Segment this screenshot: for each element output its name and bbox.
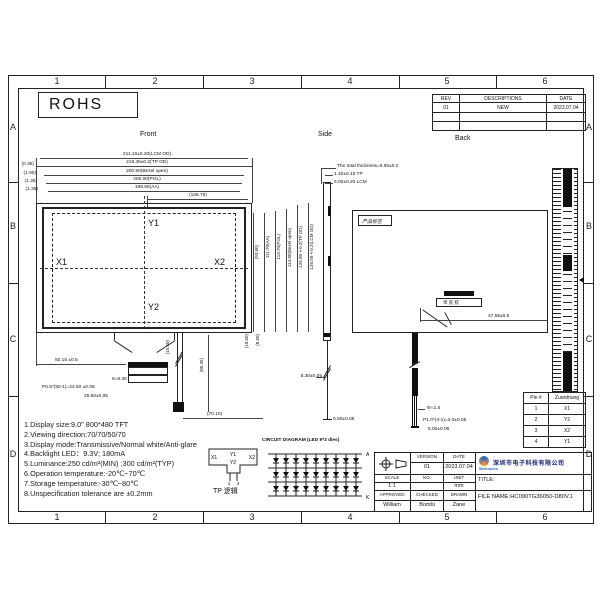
- title-block-line: [475, 452, 476, 512]
- grid-col-label: 2: [145, 76, 165, 86]
- led-symbol: [293, 458, 299, 463]
- dim-leader: [322, 168, 336, 169]
- frame-tick: [203, 75, 204, 88]
- no-label: NO.: [423, 475, 431, 480]
- dim-label-tail-len: (80.35): [200, 358, 205, 372]
- dim-ext-line: [321, 168, 322, 184]
- tp-y1-label: Y1: [230, 452, 236, 458]
- dim-ext-line: [252, 158, 253, 203]
- led-symbol: [323, 472, 329, 477]
- fpc-pin-strip-stripes: [574, 169, 577, 391]
- dim-label-conn-total: 25.50±0.05: [84, 394, 108, 400]
- pointer-arrow-icon: [579, 277, 584, 283]
- rev-cell: [547, 122, 586, 131]
- led-symbol: [333, 472, 339, 477]
- fpc-tail-edge: [182, 333, 183, 403]
- dim-label-aa-w: 198.90(AA): [135, 185, 159, 191]
- back-connector-bar: [444, 291, 474, 296]
- rev-cell: NEW: [460, 103, 547, 113]
- title-block-line: [374, 490, 592, 491]
- led-symbol: [323, 486, 329, 491]
- tp-y2-label: Y2: [230, 460, 236, 466]
- grid-row-label: D: [8, 449, 18, 459]
- frame-tick: [301, 511, 302, 524]
- title-block-line: [410, 462, 475, 463]
- rohs-label: ROHS: [49, 96, 103, 114]
- dim-line: [36, 166, 252, 167]
- dim-line: [40, 158, 248, 159]
- grid-col-label: 3: [242, 512, 262, 522]
- rohs-box: ROHS: [38, 92, 138, 118]
- led-symbol: [303, 458, 309, 463]
- dim-leader: [316, 377, 326, 378]
- led-symbol: [333, 486, 339, 491]
- led-symbol: [293, 486, 299, 491]
- back-outline: [352, 210, 548, 333]
- led-symbol: [343, 486, 349, 491]
- fpc-pin-strip-stripes: [553, 169, 561, 391]
- grid-col-label: 4: [340, 76, 360, 86]
- frame-tick: [203, 511, 204, 524]
- spec-line: 4.Backlight LED：9.3V; 180mA: [24, 449, 197, 459]
- rev-header: DESCRIPTIONS: [460, 95, 547, 103]
- logo-cn-text: 深圳市电子科技有限公司: [493, 458, 565, 467]
- led-symbol: [273, 458, 279, 463]
- pin-table-header: Pin #: [524, 393, 549, 404]
- led-symbol: [313, 486, 319, 491]
- rev-cell: 2023.07.04: [547, 103, 586, 113]
- date-value: 2023.07.04: [445, 464, 473, 470]
- axis-x2-label: X2: [214, 257, 225, 267]
- checked-value: Bombi: [419, 502, 435, 508]
- dim-label-tail-off: (70.10): [206, 412, 223, 418]
- dim-ext-line: [420, 308, 421, 322]
- grid-col-label: 1: [47, 76, 67, 86]
- pin-table-header: Zuordnung: [549, 393, 586, 404]
- led-symbol: [353, 486, 359, 491]
- led-symbol: [303, 472, 309, 477]
- grid-row-label: A: [8, 122, 18, 132]
- dim-label-lcm-thick: 5.00±0.20 LCM: [334, 180, 367, 186]
- title-block-line: [374, 474, 592, 475]
- fpc-fold-edge: [114, 333, 115, 340]
- grid-col-label: 5: [437, 512, 457, 522]
- dim-leader: [418, 409, 425, 410]
- axis-x1-label: X1: [56, 257, 67, 267]
- spec-line: 1.Display size:9.0" 800*480 TFT: [24, 420, 197, 430]
- fpc-pin-strip-block: [563, 352, 572, 391]
- center-line-v: [144, 196, 145, 329]
- spec-line: 2.Viewing direction:70/70/50/70: [24, 430, 197, 440]
- dim-label-total-thick: The total thickness=6.90±0.2: [337, 164, 398, 170]
- front-view-label: Front: [140, 131, 156, 138]
- dim-line: [297, 205, 298, 332]
- drawn-label: DRAWN: [451, 492, 468, 497]
- spec-line: 8.Unspecification tolerance are ±0.2mm: [24, 489, 197, 499]
- product-label-text: 产品标签: [362, 218, 382, 225]
- side-view-label: Side: [318, 131, 332, 138]
- pin-number: 1: [524, 404, 549, 415]
- dim-label-pin-total: 5.00±0.05: [428, 427, 449, 433]
- unit-label: UNIT: [454, 475, 465, 480]
- frame-tick: [584, 182, 594, 183]
- pin-table: Pin # Zuordnung 1X1 2Y2 3X2 4Y1: [523, 392, 586, 448]
- unit-value: mm: [454, 483, 463, 489]
- rev-cell: [460, 122, 547, 131]
- dim-label-bezel-w: 200.90(Bezel open): [126, 169, 168, 175]
- version-value: 01: [424, 464, 430, 470]
- rev-cell: [433, 113, 460, 122]
- side-tail-end: [323, 419, 332, 420]
- version-label: VERSION: [417, 454, 437, 459]
- dim-offset-label: (1.35): [18, 187, 38, 193]
- rev-cell: 01: [433, 103, 460, 113]
- tp-pin4-label: 4: [237, 481, 240, 485]
- dim-label-conn-w: 9=6.35: [112, 377, 127, 383]
- pin-signal: X1: [549, 404, 586, 415]
- grid-row-label: B: [584, 221, 594, 231]
- back-view-label: Back: [455, 135, 471, 142]
- led-circuit-title: CIRCUIT DIAGRAM (LED 9*3 dies): [262, 438, 339, 443]
- title-block-line: [374, 500, 475, 501]
- pin-number: 3: [524, 426, 549, 437]
- dim-line: [36, 364, 126, 365]
- rev-cell: [547, 113, 586, 122]
- scale-label: SCALE: [385, 475, 400, 480]
- dim-label-pin-dia: Φ=1.5: [427, 406, 440, 412]
- dim-line: [183, 418, 263, 419]
- spec-line: 5.Luminance:250 cd/m²(MIN) ;300 cd/m²(TY…: [24, 459, 197, 469]
- side-profile-mark: [324, 333, 330, 337]
- dim-line: [208, 335, 209, 412]
- frame-tick: [399, 511, 400, 524]
- fpc-connector-body: [128, 367, 168, 375]
- dim-label-fold-h: (15.50): [166, 340, 171, 354]
- tp-x2-label: X2: [249, 455, 255, 461]
- pin-signal: Y2: [549, 415, 586, 426]
- dim-label-bezel-h: 114.00(Bezel open): [288, 228, 293, 267]
- dim-label-pin-pitch: P0.5*(50-1)=24.50 ±0.05: [42, 385, 95, 391]
- back-tail-pins: [412, 396, 418, 426]
- dim-label-936: (93.60): [255, 245, 260, 259]
- frame-tick: [301, 75, 302, 88]
- dim-line: [275, 211, 276, 332]
- axis-y2-label: Y2: [148, 302, 159, 312]
- led-anode-label: A: [366, 452, 370, 458]
- side-profile-mark: [328, 206, 331, 216]
- dim-label-lcm-od-h: 126.50±0.2(LCM OD): [310, 224, 315, 270]
- projection-symbol-icon: [378, 456, 408, 471]
- frame-tick: [496, 511, 497, 524]
- dim-label-pol-h: 113.70(POL): [277, 234, 282, 259]
- back-tail-end: [411, 426, 419, 428]
- title-label: TITLE:: [478, 477, 495, 483]
- file-name: FILE NAME:HC090TG36050-D80V.1: [478, 494, 573, 500]
- led-symbol: [293, 472, 299, 477]
- grid-row-label: B: [8, 221, 18, 231]
- spec-line: 7.Storage temperature:-30℃~80℃: [24, 479, 197, 489]
- checked-label: CHECKED: [416, 492, 438, 497]
- rev-header: DATE: [547, 95, 586, 103]
- rev-header: REV: [433, 95, 460, 103]
- grid-col-label: 4: [340, 512, 360, 522]
- frame-tick: [496, 75, 497, 88]
- back-tail: [412, 368, 418, 396]
- pin-signal: Y1: [549, 437, 586, 448]
- dim-label-pin-pitch-tp: P1.0*(4-1)=3.0±0.05: [423, 418, 466, 424]
- dim-offset-label: (1.90): [16, 171, 36, 177]
- grid-col-label: 5: [437, 76, 457, 86]
- frame-tick: [105, 75, 106, 88]
- back-connector-label-box: 单 反 胶: [436, 298, 482, 307]
- fpc-pin-strip-block: [563, 255, 572, 271]
- dim-offset-label: (1.35): [17, 179, 37, 185]
- led-symbol: [323, 458, 329, 463]
- spec-line: 6.Operation temperature:-20℃~70℃: [24, 469, 197, 479]
- led-symbol: [333, 458, 339, 463]
- frame-tick: [105, 511, 106, 524]
- frame-tick: [584, 283, 594, 284]
- dim-label-lcm-od-w: 211.10±0.20(LCM OD): [123, 152, 171, 158]
- led-symbol: [343, 472, 349, 477]
- led-symbol: [353, 458, 359, 463]
- tp-x1-label: X1: [211, 455, 217, 461]
- date-label: DATE: [453, 454, 465, 459]
- dim-line: [253, 213, 254, 332]
- dim-label-pol-w: 200.00(POL): [133, 177, 160, 183]
- rev-cell: [433, 122, 460, 131]
- dim-label-conn-offset: 47.55±0.5: [488, 314, 509, 320]
- led-symbol: [303, 486, 309, 491]
- grid-col-label: 1: [47, 512, 67, 522]
- dim-ext-line: [36, 333, 37, 366]
- approved-value: William: [383, 502, 401, 508]
- dim-label-aa-h: 111.70(AA): [266, 236, 271, 258]
- rev-cell: [460, 113, 547, 122]
- grid-col-label: 6: [535, 76, 555, 86]
- dim-leader: [325, 183, 333, 184]
- grid-row-label: C: [584, 334, 594, 344]
- dim-line: [420, 320, 548, 321]
- approved-label: APPROVED: [379, 492, 404, 497]
- company-logo: Mctronics 深圳市电子科技有限公司: [479, 456, 589, 472]
- led-symbol: [353, 472, 359, 477]
- led-symbol: [283, 472, 289, 477]
- tp-pin1-label: 1: [228, 481, 231, 485]
- fpc-connector-body: [128, 375, 168, 383]
- dim-label-tp-od-w: 218.40±0.2(TP OD): [126, 160, 168, 166]
- logo-mark-icon: [479, 456, 489, 466]
- dim-label-conn-x: 92.15 ±0.5: [55, 358, 78, 364]
- tp-logic-diagram: Y1 X1 X2 Y2 1 4: [206, 443, 260, 485]
- dim-label-tp-od-h: 125.80±0.2(TP OD): [299, 226, 304, 268]
- pin-number: 4: [524, 437, 549, 448]
- tp-logic-caption: TP 逻辑: [213, 486, 238, 496]
- spec-line: 3.Display mode:Transmissive/Normal white…: [24, 440, 197, 450]
- dim-line: [44, 175, 244, 176]
- pin-signal: X2: [549, 426, 586, 437]
- led-symbol: [343, 458, 349, 463]
- led-circuit-diagram: A K: [264, 446, 374, 504]
- scale-value: 1:1: [388, 483, 396, 489]
- led-symbol: [283, 458, 289, 463]
- side-profile-mark: [328, 256, 331, 266]
- dim-label-tp-thick: 1.40±0.15 TP: [334, 172, 363, 178]
- led-symbol: [313, 458, 319, 463]
- led-symbol: [313, 472, 319, 477]
- frame-tick: [399, 75, 400, 88]
- dim-leader: [325, 175, 333, 176]
- spec-list: 1.Display size:9.0" 800*480 TFT 2.Viewin…: [24, 420, 197, 498]
- drawn-value: Zane: [453, 502, 466, 508]
- led-cathode-label: K: [366, 495, 370, 501]
- dim-line: [264, 213, 265, 332]
- frame-tick: [8, 283, 18, 284]
- dim-line: [147, 199, 248, 200]
- dim-label-half-w: (106.75): [189, 193, 207, 199]
- revision-table: REV DESCRIPTIONS DATE 01 NEW 2023.07.04: [432, 94, 586, 131]
- grid-col-label: 3: [242, 76, 262, 86]
- led-symbol: [273, 486, 279, 491]
- grid-col-label: 2: [145, 512, 165, 522]
- side-tail: [327, 341, 328, 419]
- back-connector-label: 单 反 胶: [443, 300, 459, 306]
- pin-number: 2: [524, 415, 549, 426]
- dim-label-860: (8.60): [256, 334, 261, 346]
- fpc-tail-edge: [177, 333, 178, 403]
- dim-label-1060: (10.60): [245, 334, 250, 348]
- led-symbol: [273, 472, 279, 477]
- led-symbol: [283, 486, 289, 491]
- grid-col-label: 6: [535, 512, 555, 522]
- fpc-tail-end: [173, 402, 184, 412]
- dim-line: [48, 191, 240, 192]
- frame-tick: [8, 396, 18, 397]
- dim-line: [46, 183, 242, 184]
- grid-row-label: C: [8, 334, 18, 344]
- axis-y1-label: Y1: [148, 218, 159, 228]
- drawing-sheet: 1 2 3 4 5 6 1 2 3 4 5 6 A B C D A B C D …: [0, 0, 600, 600]
- dim-offset-label: (0.35): [14, 162, 34, 168]
- dim-label-side-end: 0.50±0.05: [333, 417, 354, 423]
- product-label-box: 产品标签: [358, 215, 392, 226]
- fpc-pin-strip-block: [563, 169, 572, 207]
